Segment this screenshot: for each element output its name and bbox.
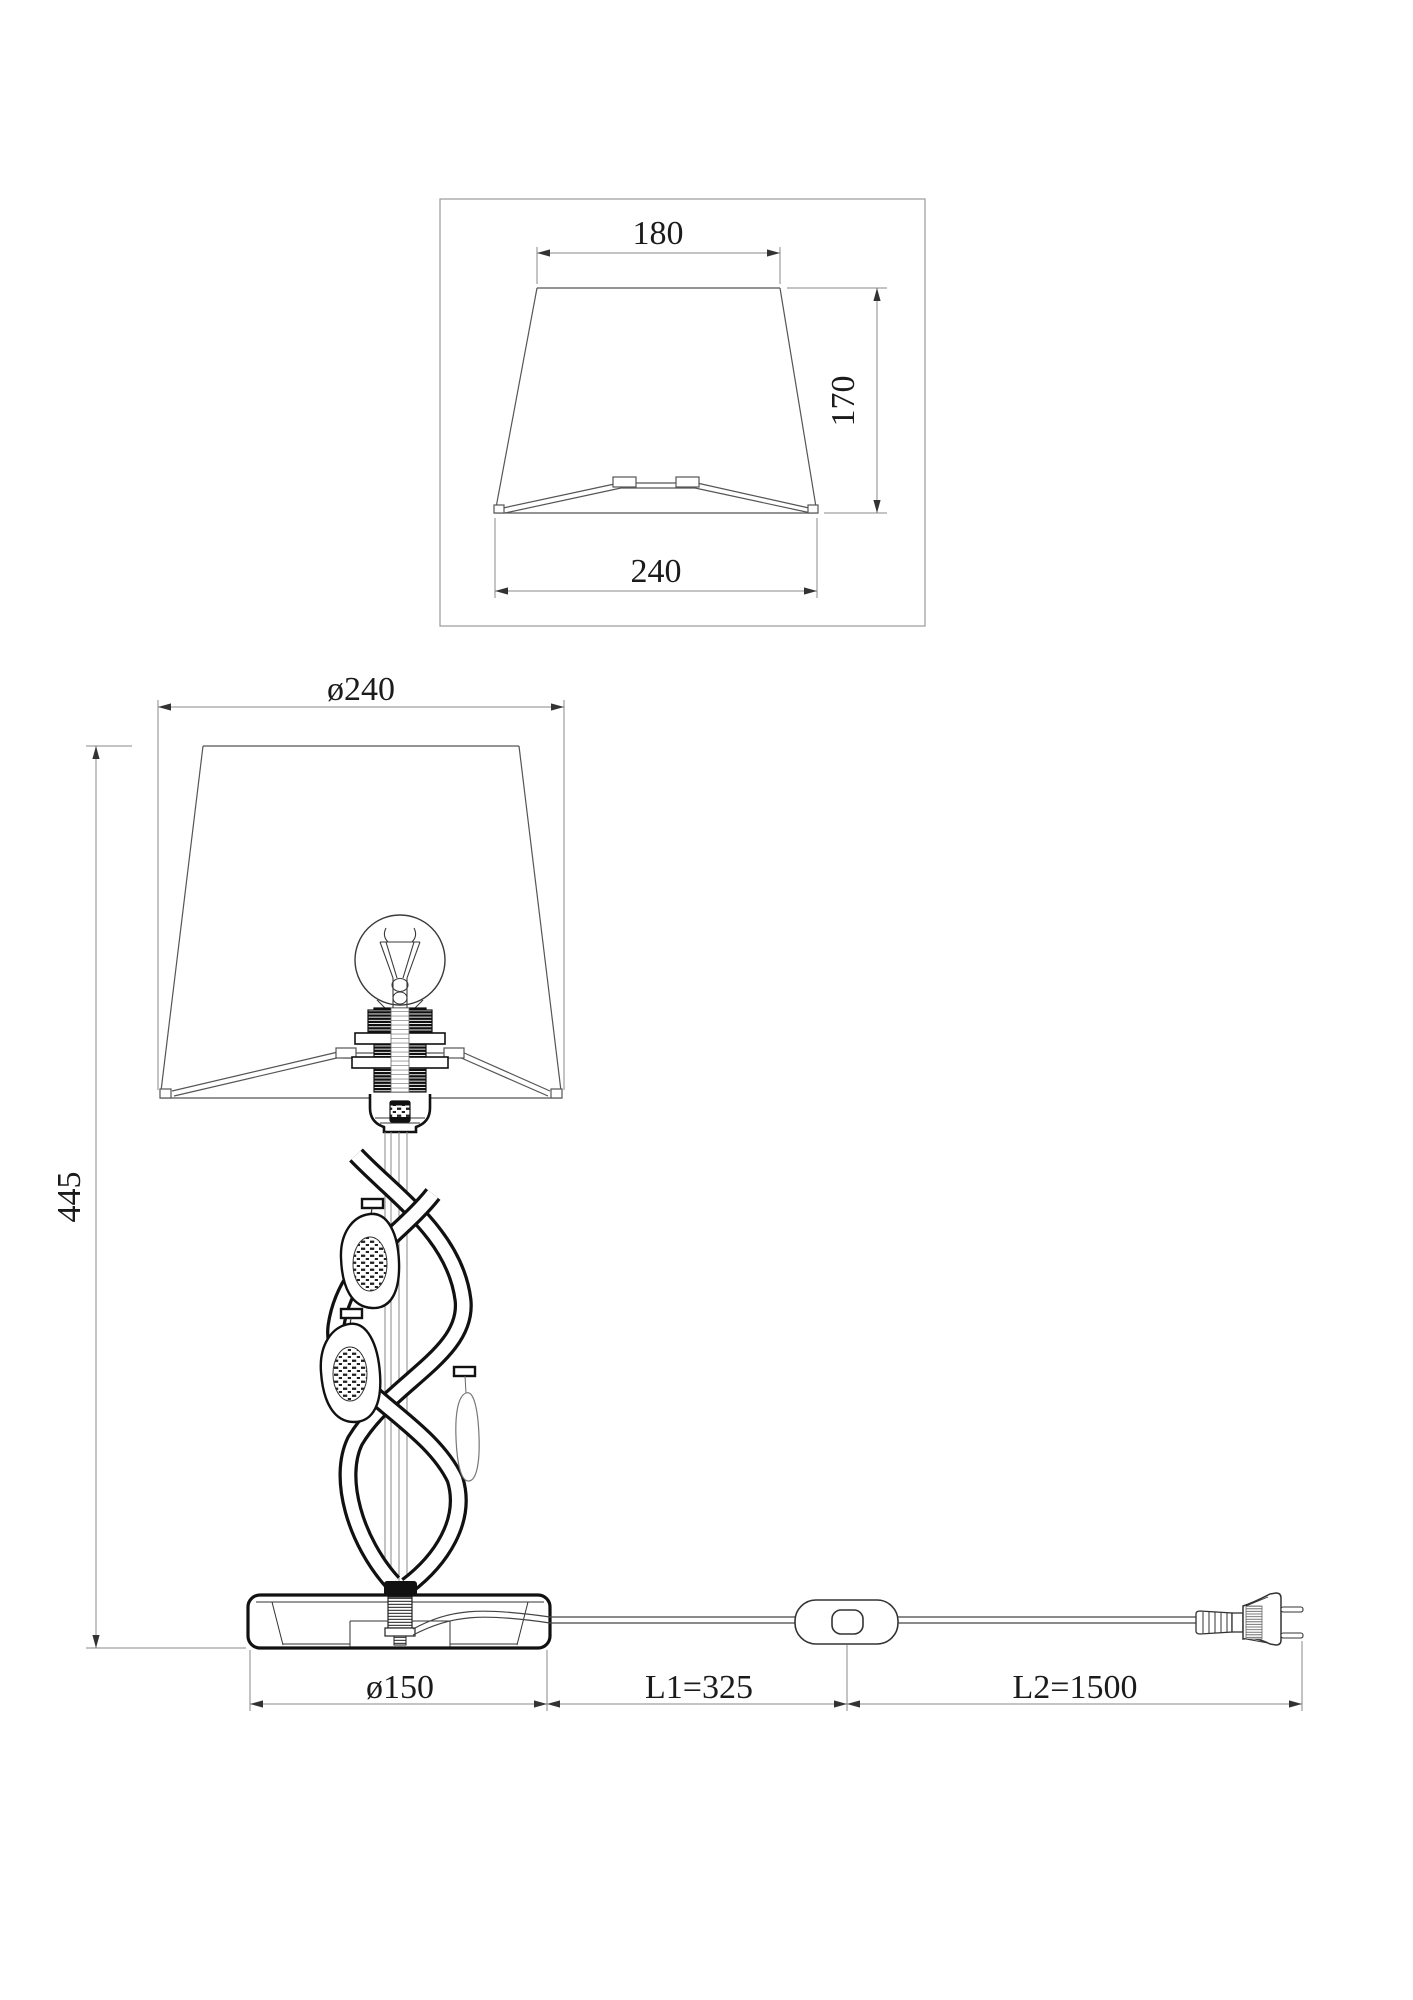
- technical-drawing-canvas: 180 170 240: [0, 0, 1413, 2000]
- dim-label-180: 180: [633, 215, 684, 252]
- dim-label-d150: ø150: [366, 1669, 434, 1706]
- dimension-shade-bottom-width: 240: [495, 518, 817, 598]
- dim-label-d240: ø240: [327, 671, 395, 708]
- plug-prong-upper: [1281, 1607, 1303, 1612]
- crystal-leaf-right: [454, 1367, 479, 1481]
- dimension-shade-top-width: 180: [537, 215, 780, 284]
- dimension-bottom-chain: ø150 L1=325 L2=1500: [250, 1641, 1302, 1711]
- dimension-shade-diameter: ø240: [158, 671, 564, 1090]
- power-cord-l2: [898, 1617, 1197, 1623]
- switch-button: [832, 1610, 863, 1634]
- dimension-total-height: 445: [51, 746, 246, 1648]
- dim-label-l1: L1=325: [645, 1669, 753, 1706]
- leaf-ornament-upper: [341, 1199, 399, 1308]
- threaded-rod: [388, 1597, 412, 1628]
- shade-detail-view: 180 170 240: [440, 199, 925, 626]
- lamp-dimensional-drawing: 180 170 240: [0, 0, 1413, 2000]
- shade-outline: [494, 288, 818, 513]
- bulb-socket: [352, 1008, 448, 1092]
- dimension-shade-height: 170: [787, 288, 887, 513]
- socket-cup: [370, 1094, 430, 1132]
- lamp-shade: [160, 746, 562, 1098]
- dim-label-l2: L2=1500: [1013, 1669, 1138, 1706]
- dim-label-240: 240: [631, 553, 682, 590]
- power-plug: [1196, 1593, 1303, 1645]
- lamp-front-view: ø240 445: [51, 671, 1303, 1711]
- dim-label-170: 170: [825, 376, 862, 427]
- lamp-base: [248, 1595, 550, 1648]
- plug-prong-lower: [1281, 1633, 1303, 1638]
- inline-switch: [795, 1600, 898, 1644]
- power-cord-l1: [550, 1617, 795, 1623]
- light-bulb: [355, 915, 445, 1008]
- dim-label-445: 445: [51, 1172, 88, 1223]
- rod-nut: [385, 1628, 415, 1636]
